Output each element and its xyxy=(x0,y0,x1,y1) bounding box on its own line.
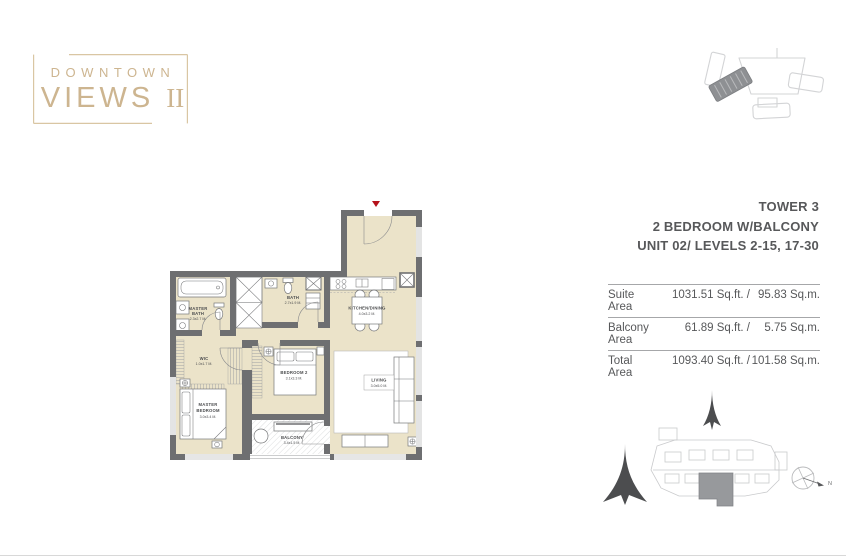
room-label: BEDROOM 2 xyxy=(280,370,308,375)
room-label: BATH xyxy=(287,295,299,300)
brand-line1: DOWNTOWN xyxy=(33,65,188,80)
entry-marker-icon xyxy=(372,201,380,207)
svg-text:3.0x3.4 M.: 3.0x3.4 M. xyxy=(200,415,217,419)
tower-label: TOWER 3 xyxy=(637,197,819,217)
location-graphics: N xyxy=(595,378,840,523)
svg-text:3.0x5.0 M.: 3.0x5.0 M. xyxy=(371,384,388,388)
brand-logo: DOWNTOWN VIEWS II xyxy=(33,54,188,124)
unit-levels-label: UNIT 02/ LEVELS 2-15, 17-30 xyxy=(637,236,819,256)
room-label: BALCONY xyxy=(281,435,303,440)
entry-door-gap xyxy=(364,210,392,216)
room-label: WIC xyxy=(200,356,209,361)
room-label: KITCHEN/DINING xyxy=(348,306,385,311)
unit-keyplan-icon xyxy=(695,42,830,147)
svg-text:4.0x3.2 M.: 4.0x3.2 M. xyxy=(359,312,376,316)
floor-entry xyxy=(347,216,416,271)
svg-text:1.0x1.7 M.: 1.0x1.7 M. xyxy=(196,362,213,366)
svg-text:2.3x2.7 M.: 2.3x2.7 M. xyxy=(190,317,207,321)
area-label: Balcony Area xyxy=(608,322,652,346)
master-closet xyxy=(236,277,262,328)
kitchen-counter xyxy=(330,277,396,293)
unit-type-label: 2 BEDROOM W/BALCONY xyxy=(637,217,819,237)
area-sqft: 1031.51 Sq.ft. / xyxy=(652,289,750,301)
area-label: Total Area xyxy=(608,355,652,379)
svg-text:2.7x1.9 M.: 2.7x1.9 M. xyxy=(285,301,302,305)
compass-icon: N xyxy=(792,467,832,489)
brochure-page: DOWNTOWN VIEWS II TOWER 3 2 BEDROOM W/BA… xyxy=(0,0,846,556)
brand-line2: VIEWS II xyxy=(33,82,188,115)
svg-text:BATH: BATH xyxy=(192,311,204,316)
area-table: Suite Area 1031.51 Sq.ft. /95.83 Sq.m. B… xyxy=(608,284,820,383)
floor-plan: MASTER BATH 2.3x2.7 M. BATH 2.7x1.9 M. W… xyxy=(166,193,428,469)
svg-text:3.1x3.3 M.: 3.1x3.3 M. xyxy=(286,377,303,381)
table-row: Balcony Area 61.89 Sq.ft. /5.75 Sq.m. xyxy=(608,317,820,350)
unit-info: TOWER 3 2 BEDROOM W/BALCONY UNIT 02/ LEV… xyxy=(637,197,819,256)
area-sqm: 5.75 Sq.m. xyxy=(750,322,820,334)
svg-text:3.4x1.5 M.: 3.4x1.5 M. xyxy=(284,441,301,445)
highlighted-unit xyxy=(708,66,753,102)
compass-north-label: N xyxy=(828,481,832,487)
area-sqft: 1093.40 Sq.ft. / xyxy=(652,355,750,367)
area-label: Suite Area xyxy=(608,289,652,313)
area-sqm: 101.58 Sq.m. xyxy=(750,355,820,367)
tower-silhouette-icon xyxy=(603,444,647,505)
brand-numeral: II xyxy=(166,83,184,113)
area-sqm: 95.83 Sq.m. xyxy=(750,289,820,301)
site-plan-highlighted-unit xyxy=(699,473,733,506)
spire-icon xyxy=(703,390,721,430)
svg-text:BEDROOM: BEDROOM xyxy=(196,408,220,413)
table-row: Suite Area 1031.51 Sq.ft. /95.83 Sq.m. xyxy=(608,284,820,317)
room-label: MASTER xyxy=(199,402,218,407)
room-label: LIVING xyxy=(371,378,386,383)
area-sqft: 61.89 Sq.ft. / xyxy=(652,322,750,334)
living-furniture xyxy=(334,351,417,447)
